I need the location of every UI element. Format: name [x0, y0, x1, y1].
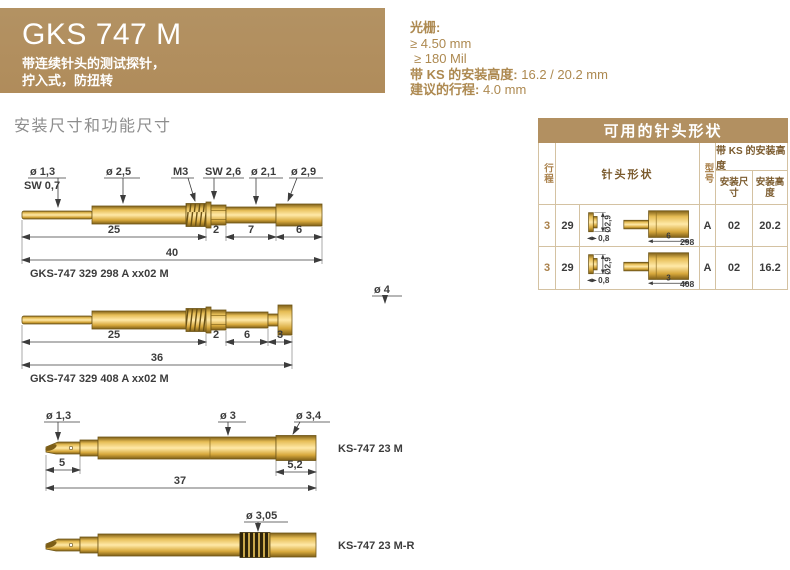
col-header-mount-height: 安装高度 [753, 171, 787, 205]
dim-value: 5,2 [287, 459, 302, 471]
drawing-caption: GKS-747 329 298 A xx02 M [30, 268, 169, 280]
thread-hatch [186, 309, 208, 332]
dim-value: 5 [59, 457, 65, 469]
row2-mount-height: 16.2 [753, 247, 787, 289]
row1-spring: 29 [556, 205, 580, 247]
dim-total: 40 [166, 247, 178, 259]
dim-value: 2 [213, 329, 219, 341]
vent-hole [69, 543, 72, 546]
dim-label: ø 1,3 [30, 166, 55, 178]
dim-total: 37 [174, 475, 186, 487]
page-subtitle-line2: 拧入式，防扭转 [22, 72, 385, 89]
spec-mount-value: 16.2 / 20.2 mm [521, 67, 608, 82]
col-header-type-label: 型号 [701, 163, 715, 184]
col-header-mount-group: 带 KS 的安装高度 [716, 143, 787, 171]
drawing-ks-23mr: ø 3,05 KS-747 23 M-R [44, 510, 414, 558]
spec-grid-mm: ≥ 4.50 mm [410, 36, 780, 52]
dim-value: 2 [213, 224, 219, 236]
tip-shape-298: Ø2,9 0,8 6 298 [582, 206, 698, 246]
row1-mount-dim: 02 [716, 205, 753, 247]
drawing-gks-298: ø 1,3 SW 0,7 ø 2,5 M3 SW 2,6 ø 2,1 ø 2,9… [22, 166, 323, 280]
drawing-caption: KS-747 23 M [338, 443, 403, 455]
page-title: GKS 747 M [22, 18, 385, 52]
tip-shape-408: Ø2,9 0,8 3 408 [582, 248, 698, 288]
technical-drawings: ø 1,3 SW 0,7 ø 2,5 M3 SW 2,6 ø 2,1 ø 2,9… [0, 140, 530, 570]
spec-travel-value: 4.0 mm [483, 82, 526, 97]
drawing-gks-408: ø 4 25 2 6 3 36 GKS-747 329 408 A xx02 M [22, 284, 402, 385]
spec-travel-label: 建议的行程: [410, 82, 479, 97]
knurl-ring [240, 533, 270, 558]
row1-tip-drawing: Ø2,9 0,8 6 298 [580, 205, 700, 247]
tip-dim2: 3 [666, 273, 671, 282]
tip-code: 408 [679, 279, 694, 288]
row1-travel: 3 [539, 205, 556, 247]
dim-label: ø 2,5 [106, 166, 131, 178]
dim-label: SW 0,7 [24, 180, 60, 192]
dim-value: 25 [108, 329, 120, 341]
row2-mount-dim: 02 [716, 247, 753, 289]
row1-mount-height: 20.2 [753, 205, 787, 247]
tip-dim2: 6 [666, 231, 671, 240]
col-header-mount-height-label: 安装高度 [753, 177, 787, 199]
drawing-caption: KS-747 23 M-R [338, 540, 414, 552]
row2-tip-drawing: Ø2,9 0,8 3 408 [580, 247, 700, 289]
tip-dim1: 0,8 [598, 276, 610, 285]
section-heading: 安装尺寸和功能尺寸 [14, 112, 172, 136]
dim-label: SW 2,6 [205, 166, 241, 178]
dim-label: ø 3 [220, 410, 236, 422]
spec-mount-line: 带 KS 的安装高度: 16.2 / 20.2 mm [410, 67, 780, 83]
row2-travel: 3 [539, 247, 556, 289]
dim-label: ø 4 [374, 284, 391, 296]
spec-grid-label: 光栅: [410, 20, 780, 36]
drawing-ks-23m: ø 1,3 ø 3 ø 3,4 5 5,2 37 KS-747 23 M [44, 410, 403, 491]
tip-dia-label: Ø2,9 [603, 214, 612, 232]
drawing-caption: GKS-747 329 408 A xx02 M [30, 373, 169, 385]
dim-label: M3 [173, 166, 188, 178]
dim-value: 25 [108, 224, 120, 236]
col-header-mount-dim: 安装尺寸 [716, 171, 753, 205]
dim-value: 6 [296, 224, 302, 236]
row1-type: A [700, 205, 716, 247]
tip-table-title: 可用的针头形状 [538, 118, 788, 143]
dim-value: 3 [277, 329, 283, 341]
spec-travel-line: 建议的行程: 4.0 mm [410, 82, 780, 98]
dim-label: ø 1,3 [46, 410, 71, 422]
tip-dia-label: Ø2,9 [603, 257, 612, 275]
dim-label: ø 3,4 [296, 410, 322, 422]
col-header-travel-label: 行程 [540, 163, 554, 184]
spec-mount-label: 带 KS 的安装高度: [410, 67, 518, 82]
spec-grid-mil: ≥ 180 Mil [410, 51, 780, 67]
dim-total: 36 [151, 352, 163, 364]
spec-block: 光栅: ≥ 4.50 mm ≥ 180 Mil 带 KS 的安装高度: 16.2… [410, 20, 780, 98]
tip-shape-table: 可用的针头形状 行程 针头形状 型号 带 KS 的安装高度 安装尺寸 安装高度 … [538, 118, 788, 290]
tip-table-grid: 行程 针头形状 型号 带 KS 的安装高度 安装尺寸 安装高度 3 29 Ø2,… [538, 143, 788, 290]
col-header-mount-dim-label: 安装尺寸 [716, 177, 752, 199]
thread-hatch [186, 204, 208, 227]
col-header-tip-shape: 针头形状 [556, 143, 700, 205]
dim-value: 7 [248, 224, 254, 236]
tip-code: 298 [679, 237, 694, 246]
row2-type: A [700, 247, 716, 289]
dim-label: ø 3,05 [246, 510, 277, 522]
page-subtitle-line1: 带连续针头的测试探针， [22, 55, 385, 72]
dim-label: ø 2,9 [291, 166, 316, 178]
header-band: GKS 747 M 带连续针头的测试探针， 拧入式，防扭转 [0, 8, 385, 93]
row2-spring: 29 [556, 247, 580, 289]
col-header-type: 型号 [700, 143, 716, 205]
vent-hole [69, 446, 72, 449]
col-header-travel: 行程 [539, 143, 556, 205]
tip-dim1: 0,8 [598, 234, 610, 243]
dim-label: ø 2,1 [251, 166, 276, 178]
dim-value: 6 [244, 329, 250, 341]
